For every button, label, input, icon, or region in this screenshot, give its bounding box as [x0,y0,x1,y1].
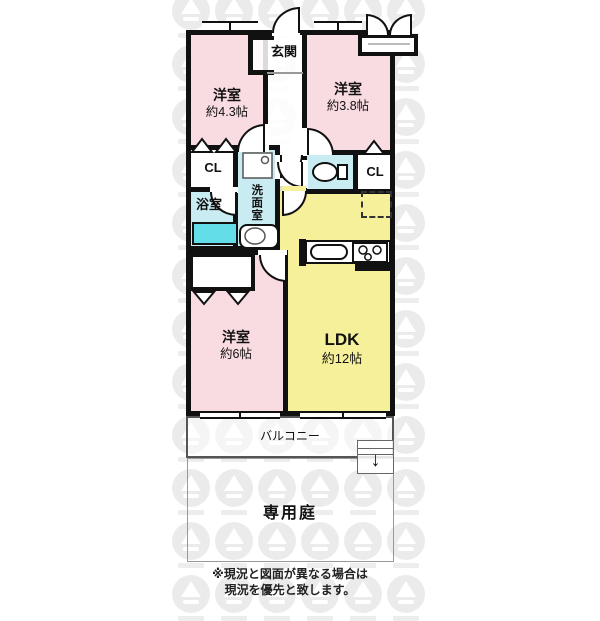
watermark-text-bar [393,351,419,356]
watermark-text-bar [178,616,204,621]
window-bedroom6 [200,411,280,419]
bedroom6-closet [189,253,255,291]
closet-left-label: CL [192,160,234,176]
fold-door-icon-closet-right [362,140,386,155]
entrance-label: 玄関 [261,44,307,60]
garden-label: 専用庭 [210,504,370,524]
watermark-text-bar [307,616,333,621]
disclaimer-note: ※現況と図面が異なる場合は 現況を優先と致します。 [140,566,440,598]
escape-hatch: ↓ [357,440,394,474]
bedroom38-size: 約3.8帖 [327,99,369,115]
watermark-text-bar [393,616,419,621]
fold-door-icon-bedroom6 [193,291,255,305]
vanity-sink-icon [239,224,279,250]
stove-icon [352,242,388,263]
watermark-text-bar [393,245,419,250]
hatch-arrow-icon: ↓ [358,447,393,473]
window-bedroom38 [314,21,362,32]
fold-door-icon-closet-left [191,138,237,153]
bedroom6-label: 洋室 約6帖 [190,326,282,366]
bedroom38-label: 洋室 約3.8帖 [305,78,391,118]
toilet-icon [310,158,350,186]
bedroom6-name: 洋室 [222,329,250,347]
balcony-label: バルコニー [210,428,370,444]
washroom-label: 洗面室 [247,182,265,224]
bedroom6-size: 約6帖 [220,347,252,363]
bedroom43-label: 洋室 約4.3帖 [188,84,266,124]
disclaimer-line1: ※現況と図面が異なる場合は [140,566,440,582]
bedroom43-size: 約4.3帖 [206,105,248,121]
watermark-text-bar [393,298,419,303]
watermark-text-bar [393,457,419,462]
bedroom38-name: 洋室 [334,81,362,99]
watermark-text-bar [393,139,419,144]
ldk-name: LDK [325,329,360,350]
entrance-step-line [267,72,303,74]
closet-right-label: CL [357,164,393,180]
window-bedroom43 [202,21,258,32]
washing-machine-pan-icon [242,152,274,180]
watermark-text-bar [350,616,376,621]
trunk-closet [358,34,418,56]
bathtub [192,222,238,245]
disclaimer-line2: 現況を優先と致します。 [140,582,440,598]
watermark-text-bar [393,86,419,91]
watermark-text-bar [393,510,419,515]
kitchen-sink [310,244,348,260]
refrigerator-space [361,191,392,218]
window-ldk [300,411,386,419]
ldk-label: LDK 約12帖 [296,326,388,370]
watermark-text-bar [393,404,419,409]
watermark-text-bar [264,616,290,621]
watermark-text-bar [393,192,419,197]
bathroom-label: 浴室 [187,197,231,213]
bedroom43-name: 洋室 [213,87,241,105]
watermark-text-bar [221,616,247,621]
ldk-size: 約12帖 [322,351,362,367]
counter-wall-bar [355,264,394,271]
kitchen-counter-endcap [299,239,306,266]
